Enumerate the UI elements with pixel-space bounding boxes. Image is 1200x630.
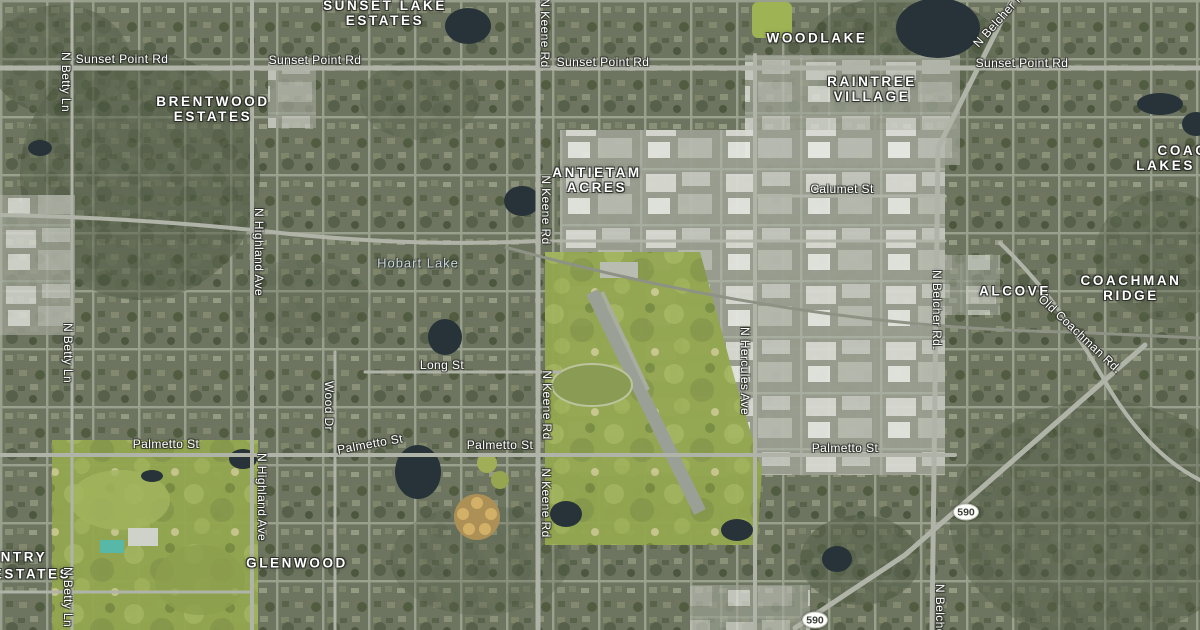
- satellite-map[interactable]: SUNSET LAKEESTATESWOODLAKEBRENTWOODESTAT…: [0, 0, 1200, 630]
- satellite-imagery: [0, 0, 1200, 630]
